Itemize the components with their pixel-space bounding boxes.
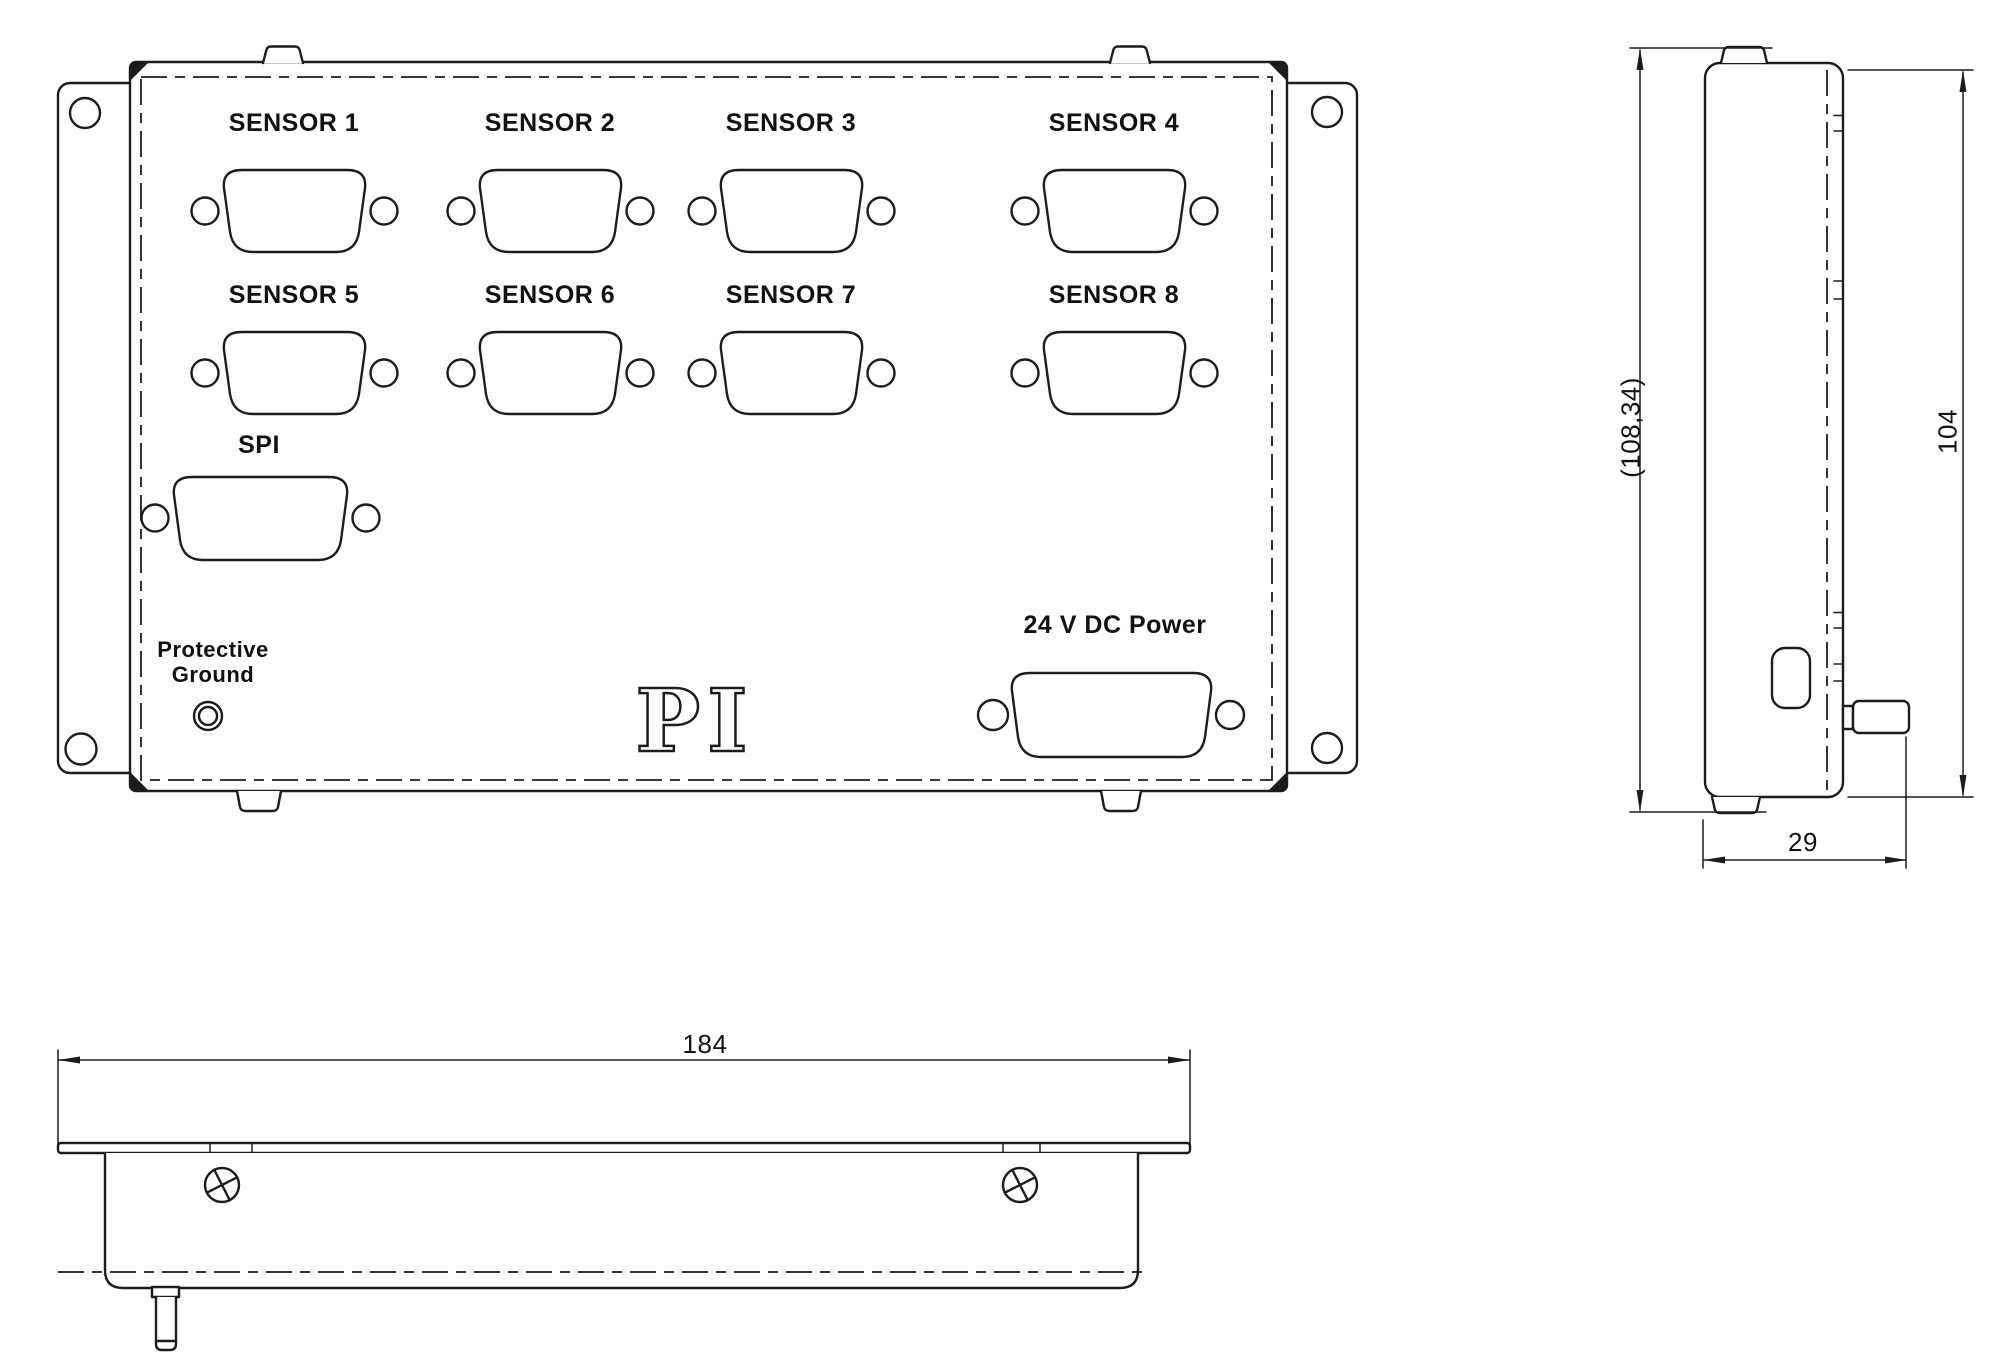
enclosure-bottom-outline	[105, 1153, 1138, 1288]
pi-logo: PI	[636, 671, 755, 772]
side-bottom-tab	[1712, 797, 1760, 813]
side-slot-cutout	[1772, 648, 1810, 708]
drawing-canvas: PI	[0, 0, 2000, 1370]
bottom-tab-right	[1101, 791, 1141, 811]
sensor-3-label: SENSOR 3	[726, 109, 856, 138]
dim-overall-width	[58, 1050, 1190, 1151]
dim-overall-height-text: (108,34)	[1616, 348, 1647, 508]
technical-drawing-page: PI	[0, 0, 2000, 1370]
base-plate-edge	[58, 1143, 1190, 1153]
sensor-6-label: SENSOR 6	[485, 281, 615, 310]
dim-depth-text: 29	[1788, 827, 1818, 858]
sensor-5-label: SENSOR 5	[229, 281, 359, 310]
spi-label: SPI	[238, 431, 280, 460]
ground-stud	[152, 1287, 179, 1350]
top-tab-right	[1110, 47, 1150, 64]
dim-width-text: 184	[683, 1029, 728, 1060]
protective-ground-label: Protective Ground	[157, 637, 268, 687]
side-top-tab	[1721, 47, 1767, 63]
protective-ground-line2: Ground	[172, 662, 254, 687]
sensor-7-label: SENSOR 7	[726, 281, 856, 310]
bottom-view-drawing	[58, 1050, 1190, 1350]
top-tab-left	[263, 47, 303, 64]
power-plug-side	[1843, 701, 1909, 733]
protective-ground-line1: Protective	[157, 637, 268, 662]
front-view-drawing: PI	[58, 47, 1357, 812]
sensor-2-label: SENSOR 2	[485, 109, 615, 138]
side-view-drawing	[1630, 47, 1973, 868]
power-label: 24 V DC Power	[1024, 611, 1207, 640]
sensor-4-label: SENSOR 4	[1049, 109, 1179, 138]
dim-body-height-text: 104	[1933, 352, 1964, 512]
sensor-8-label: SENSOR 8	[1049, 281, 1179, 310]
bottom-tab-left	[237, 791, 281, 811]
sensor-1-label: SENSOR 1	[229, 109, 359, 138]
